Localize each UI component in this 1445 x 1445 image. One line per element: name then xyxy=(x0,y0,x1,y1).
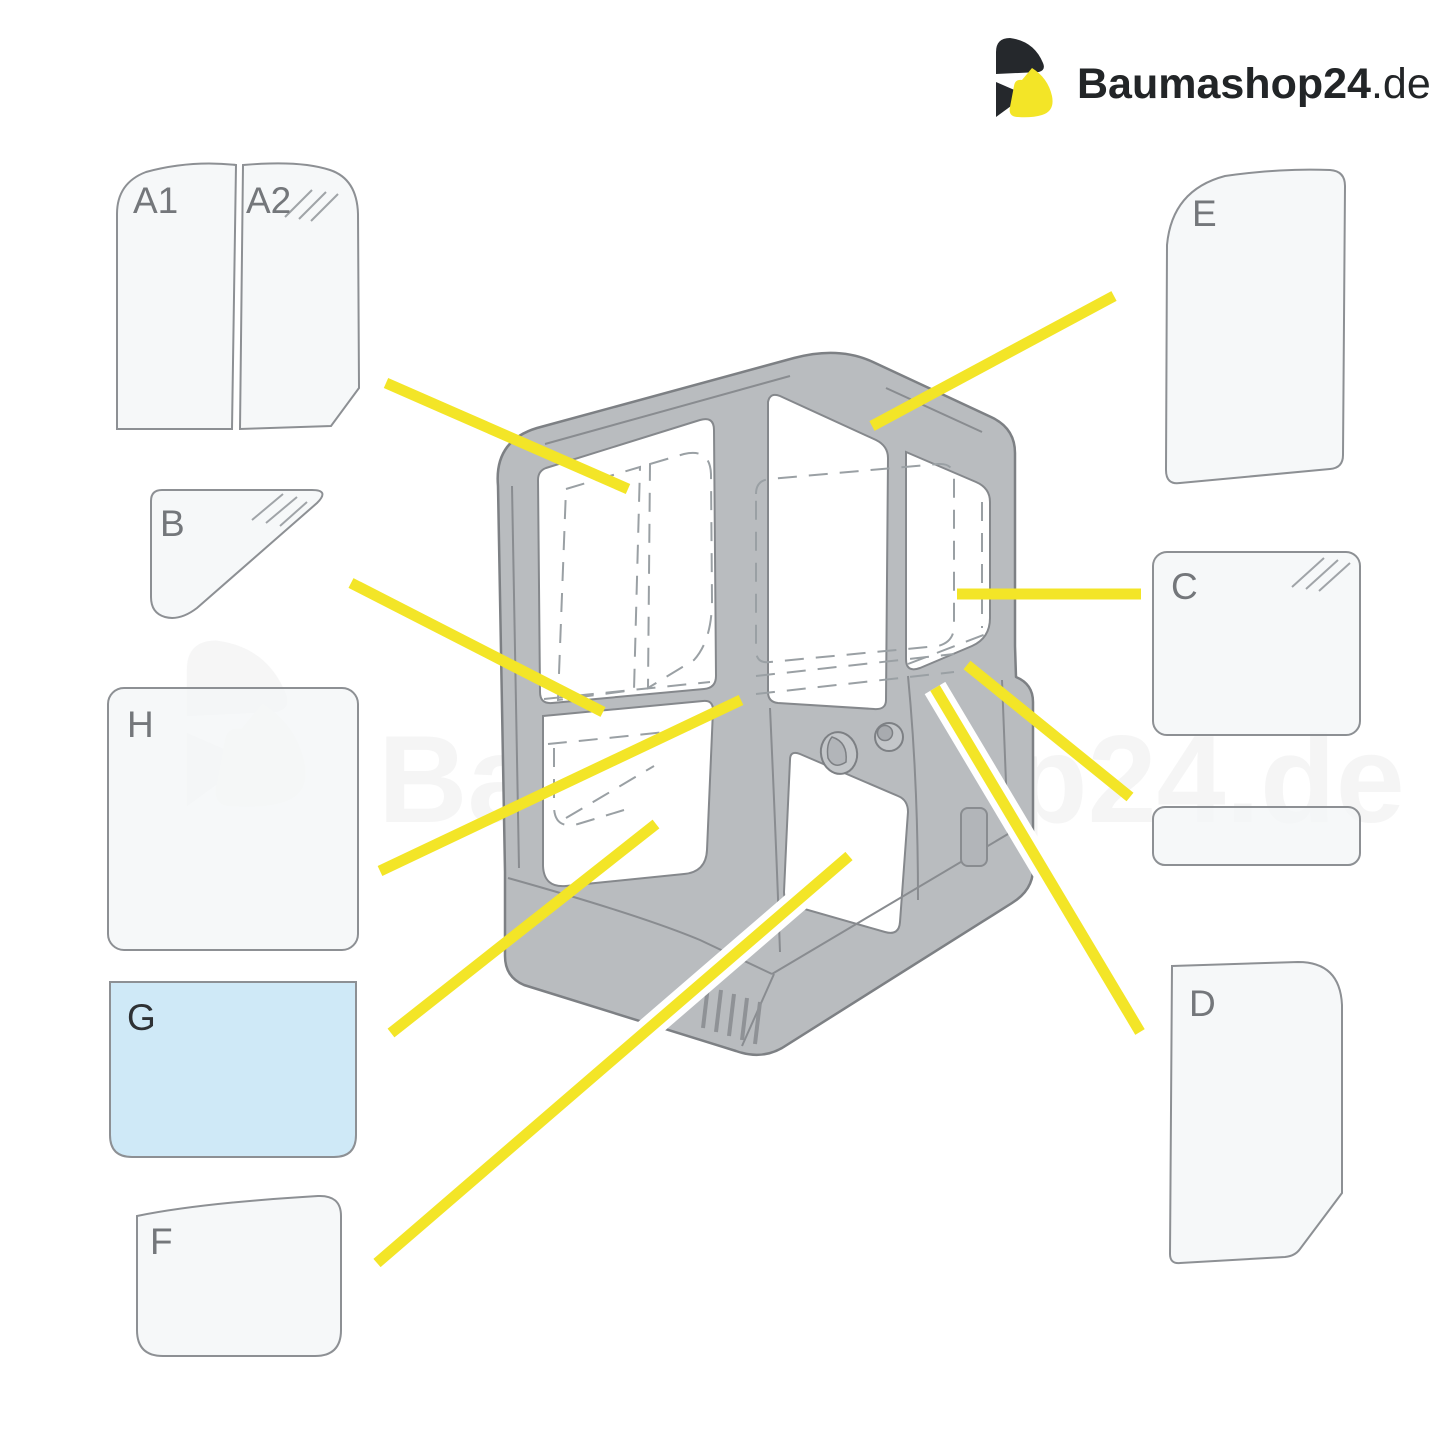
panel-c-label: C xyxy=(1171,566,1198,607)
panel-a2: A2 xyxy=(240,163,359,429)
panel-g: G xyxy=(110,982,356,1157)
panel-h-label: H xyxy=(127,704,154,745)
panel-d-label: D xyxy=(1189,983,1216,1024)
panel-a1: A1 xyxy=(117,164,236,429)
pointer-line-e xyxy=(872,296,1114,426)
product-diagram-page: Baumashop24.de xyxy=(0,0,1445,1445)
panel-d: D xyxy=(1170,962,1342,1263)
panel-a1-label: A1 xyxy=(133,180,178,221)
cab-door-upper-window xyxy=(768,395,888,709)
panel-f-label: F xyxy=(150,1221,173,1262)
cab-rear-recess xyxy=(961,808,987,866)
panel-e-label: E xyxy=(1192,193,1217,234)
panel-c: C xyxy=(1153,552,1360,735)
panel-spare-strip xyxy=(1153,807,1360,865)
brand-logo-text: Baumashop24.de xyxy=(1077,60,1431,108)
panel-a2-label: A2 xyxy=(246,180,291,221)
panel-b: B xyxy=(151,490,322,618)
panel-f: F xyxy=(137,1196,341,1356)
cab-glazing-diagram: Baumashop24.de xyxy=(0,0,1445,1445)
panel-e: E xyxy=(1166,170,1345,484)
brand-logo: Baumashop24.de xyxy=(996,38,1431,117)
panel-b-label: B xyxy=(160,503,185,544)
brand-logo-icon xyxy=(996,38,1053,117)
panel-h: H xyxy=(108,688,358,950)
panel-g-label: G xyxy=(127,997,156,1038)
